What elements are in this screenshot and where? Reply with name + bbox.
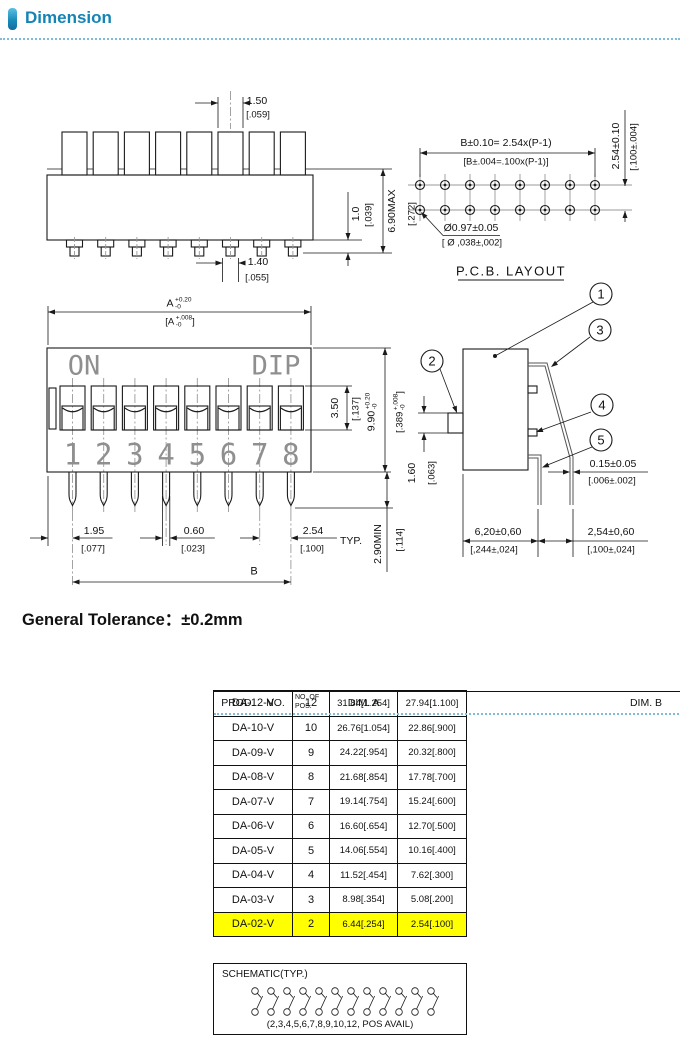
- dim-pitch-in: [.100]: [300, 544, 324, 554]
- dim-end-mm: 1.95: [84, 526, 104, 537]
- dim-pin-min-in: [.114]: [395, 528, 405, 551]
- cell-pos: 4: [293, 864, 330, 888]
- cell-dim-b: 2.54[.100]: [398, 913, 466, 937]
- cell-dim-a: 14.06[.554]: [330, 839, 398, 863]
- table-row: DA-04-V 4 11.52[.454] 7.62[.300]: [214, 863, 466, 888]
- dim-pcb-pitch-in: [.100±.004]: [629, 123, 639, 170]
- cell-dim-b: 12.70[.500]: [398, 815, 466, 839]
- dim-lever-mm: 0.15±0.05: [590, 459, 637, 470]
- general-tolerance-note: General Tolerance：±0.2mm: [22, 606, 243, 630]
- cell-prod: DA-05-V: [214, 839, 293, 863]
- cell-dim-a: 6.44[.254]: [330, 913, 398, 937]
- dim-b-label: B: [250, 567, 257, 578]
- dim-pcb-span-in: [B±.004=.100x(P-1)]: [463, 157, 548, 167]
- dim-actuator-mm: 1.60: [407, 463, 418, 483]
- dimension-drawings: [0, 0, 680, 600]
- cell-prod: DA-04-V: [214, 864, 293, 888]
- cell-pos: 3: [293, 888, 330, 912]
- cell-pos: 9: [293, 741, 330, 765]
- cell-prod: DA-09-V: [214, 741, 293, 765]
- datasheet-page: Dimension: [0, 0, 680, 1057]
- position-number-6: 6: [220, 441, 237, 470]
- header-dim-b: DIM. B: [398, 692, 680, 713]
- dim-a-mm: A +0.20-0: [167, 297, 192, 312]
- dim-slot-in: [.137]: [351, 397, 361, 421]
- cell-prod: DA-02-V: [214, 913, 293, 937]
- table-row: DA-05-V 5 14.06[.554] 10.16[.400]: [214, 838, 466, 863]
- callout-1: 1: [597, 287, 604, 302]
- dim-pinwidth-mm: 0.60: [184, 526, 204, 537]
- table-row: DA-07-V 7 19.14[.754] 15.24[.600]: [214, 789, 466, 814]
- cell-pos: 10: [293, 717, 330, 741]
- dim-pitch-mm: 2.54: [303, 526, 323, 537]
- table-row: DA-06-V 6 16.60[.654] 12.70[.500]: [214, 814, 466, 839]
- pcb-layout-title: P.C.B. LAYOUT: [456, 265, 566, 278]
- dip-label: DIP: [252, 353, 301, 380]
- schematic-availability-note: (2,3,4,5,6,7,8,9,10,12, POS AVAIL): [214, 1019, 466, 1030]
- cell-dim-a: 19.14[.754]: [330, 790, 398, 814]
- cell-dim-a: 8.98[.354]: [330, 888, 398, 912]
- cell-dim-a: 26.76[1.054]: [330, 717, 398, 741]
- cell-dim-a: 24.22[.954]: [330, 741, 398, 765]
- header-prod-no: PROD. NO.: [214, 692, 293, 713]
- cell-dim-a: 21.68[.854]: [330, 766, 398, 790]
- cell-pos: 6: [293, 815, 330, 839]
- position-number-1: 1: [64, 441, 81, 470]
- cell-dim-a: 11.52[.454]: [330, 864, 398, 888]
- dim-sidepin-in: [,100±,024]: [587, 545, 634, 555]
- position-number-3: 3: [126, 441, 143, 470]
- top-view-drawing: [47, 91, 392, 282]
- dim-hole-in: [ Ø ,038±,002]: [442, 238, 502, 248]
- dim-pcb-pitch-mm: 2.54±0.10: [611, 123, 622, 170]
- schematic-box: SCHEMATIC(TYP.) (2,3,4,5,6,7,8,9,10,12, …: [213, 963, 467, 1035]
- dim-actuator-in: [.063]: [427, 461, 437, 485]
- header-dim-a: DIM. A: [330, 692, 398, 713]
- callout-3: 3: [596, 323, 603, 338]
- dim-typ-label: TYP.: [340, 536, 362, 547]
- position-number-7: 7: [251, 441, 268, 470]
- cell-pos: 5: [293, 839, 330, 863]
- cell-prod: DA-08-V: [214, 766, 293, 790]
- dim-pcb-span-mm: B±0.10= 2.54x(P-1): [460, 138, 551, 149]
- size-table: DA-12-V 12 31.84[1.254] 27.94[1.100] DA-…: [213, 690, 467, 937]
- dim-pinwidth-in: [.023]: [181, 544, 205, 554]
- dim-hole-mm: Ø0.97±0.05: [444, 223, 499, 234]
- cell-prod: DA-07-V: [214, 790, 293, 814]
- cell-dim-b: 17.78[.700]: [398, 766, 466, 790]
- dim-body-height-in: [.389 +.008-0 ]: [393, 391, 408, 433]
- dim-end-in: [.077]: [81, 544, 105, 554]
- dim-depth-mm: 6,20±0,60: [475, 527, 522, 538]
- cell-dim-b: 20.32[.800]: [398, 741, 466, 765]
- position-number-4: 4: [157, 441, 174, 470]
- dim-lever-in: [.006±.002]: [588, 476, 635, 486]
- cell-dim-b: 10.16[.400]: [398, 839, 466, 863]
- table-row: DA-08-V 8 21.68[.854] 17.78[.700]: [214, 765, 466, 790]
- dim-pin-mm: 1.40: [248, 257, 268, 268]
- dim-sidepin-mm: 2,54±0,60: [588, 527, 635, 538]
- table-header-row: PROD. NO. NO. OF POS. DIM. A DIM. B: [214, 691, 680, 715]
- dim-pin-min-mm: 2.90MIN: [373, 524, 384, 564]
- cell-dim-b: 5.08[.200]: [398, 888, 466, 912]
- on-label: ON: [68, 353, 101, 380]
- cell-dim-b: 15.24[.600]: [398, 790, 466, 814]
- pcb-layout-drawing: [408, 110, 632, 280]
- dim-pin-in: [.055]: [245, 273, 269, 283]
- dim-a-in: [A +.008-0 ]: [165, 315, 195, 330]
- dim-standoff-in: [.039]: [364, 203, 374, 227]
- dim-actuator-width-mm: 1.50: [247, 96, 267, 107]
- table-row: DA-10-V 10 26.76[1.054] 22.86[.900]: [214, 716, 466, 741]
- callout-2: 2: [428, 354, 435, 369]
- cell-pos: 2: [293, 913, 330, 937]
- dim-height-in: [.272]: [407, 202, 417, 226]
- callout-4: 4: [598, 398, 605, 413]
- position-number-5: 5: [189, 441, 206, 470]
- dim-standoff-mm: 1.0: [351, 207, 362, 222]
- cell-dim-b: 7.62[.300]: [398, 864, 466, 888]
- dim-body-height-mm: 9.90 +0.20-0: [365, 393, 380, 431]
- cell-prod: DA-10-V: [214, 717, 293, 741]
- position-number-2: 2: [95, 441, 112, 470]
- dim-depth-in: [,244±,024]: [470, 545, 517, 555]
- position-number-8: 8: [282, 441, 299, 470]
- dim-actuator-width-in: [.059]: [246, 110, 270, 120]
- side-view-drawing: [418, 283, 648, 557]
- table-row: DA-09-V 9 24.22[.954] 20.32[.800]: [214, 740, 466, 765]
- dim-height-mm: 6.90MAX: [387, 189, 398, 232]
- table-row: DA-03-V 3 8.98[.354] 5.08[.200]: [214, 887, 466, 912]
- cell-prod: DA-06-V: [214, 815, 293, 839]
- cell-dim-a: 16.60[.654]: [330, 815, 398, 839]
- cell-dim-b: 22.86[.900]: [398, 717, 466, 741]
- header-no-of-pos: NO. OF POS.: [293, 692, 330, 713]
- table-row-highlighted: DA-02-V 2 6.44[.254] 2.54[.100]: [214, 912, 466, 937]
- dim-slot-mm: 3.50: [330, 398, 341, 418]
- cell-prod: DA-03-V: [214, 888, 293, 912]
- cell-pos: 8: [293, 766, 330, 790]
- cell-pos: 7: [293, 790, 330, 814]
- callout-5: 5: [597, 433, 604, 448]
